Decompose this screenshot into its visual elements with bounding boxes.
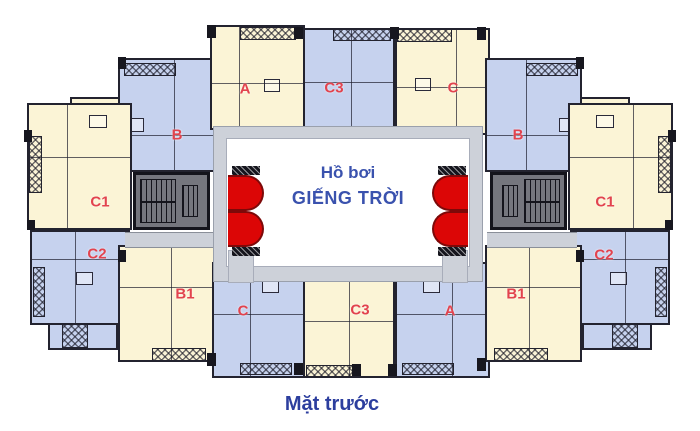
pier [352, 364, 361, 376]
unit-b1-bottom-right [485, 245, 582, 362]
stair-core-left [133, 172, 210, 230]
unit-c1-middle-left [27, 103, 132, 230]
unit-c3-bottom-center [303, 268, 395, 378]
unit-label: C [238, 303, 249, 320]
lift-landing [232, 166, 260, 175]
stair-core-right [490, 172, 567, 230]
pier [477, 358, 486, 371]
unit-a-top-left [210, 25, 305, 130]
lift-landing [438, 247, 466, 256]
lift-landing [232, 247, 260, 256]
corridor-right [487, 232, 577, 248]
unit-c-top-right [395, 28, 490, 135]
pier [668, 130, 676, 142]
balcony-hatch [240, 27, 296, 40]
unit-label: B [172, 127, 183, 144]
balcony-hatch [612, 324, 638, 348]
unit-label: A [240, 81, 251, 98]
balcony-hatch [124, 63, 176, 76]
balcony-hatch [655, 267, 667, 317]
bathroom [264, 79, 280, 92]
courtyard-label-line1: Hồ bơi [227, 163, 469, 183]
pier [27, 220, 35, 230]
pier [477, 27, 486, 40]
unit-label: B1 [506, 286, 525, 303]
courtyard: Hồ bơi GIẾNG TRỜI [226, 138, 470, 267]
unit-label: B [513, 127, 524, 144]
round-lift-icon [228, 175, 264, 211]
pier [207, 25, 216, 38]
pier [665, 220, 673, 230]
unit-label: C3 [350, 302, 369, 319]
balcony-hatch [658, 136, 671, 193]
round-lift-icon [228, 211, 264, 247]
staircase-icon [502, 185, 518, 217]
unit-label: A [445, 303, 456, 320]
pier [390, 27, 399, 39]
unit-b1-bottom-left [118, 245, 215, 362]
unit-label: B1 [175, 286, 194, 303]
bathroom [76, 272, 93, 285]
staircase-icon [182, 185, 198, 217]
pier [576, 57, 584, 69]
balcony-hatch [333, 29, 391, 41]
front-caption: Mặt trước [285, 393, 379, 416]
balcony-hatch [526, 63, 578, 76]
pier [576, 250, 584, 262]
unit-c2-lower-left [30, 230, 130, 325]
unit-label: C1 [595, 194, 614, 211]
round-lift-icon [432, 175, 468, 211]
pier [294, 363, 303, 375]
bathroom [415, 78, 431, 91]
balcony-hatch [62, 324, 88, 348]
unit-label: C [448, 80, 459, 97]
bathroom [89, 115, 107, 128]
balcony-hatch [29, 136, 42, 193]
staircase-icon [524, 179, 560, 223]
unit-label: C2 [87, 246, 106, 263]
balcony-hatch [240, 363, 292, 375]
staircase-icon [140, 179, 176, 223]
corridor-left [125, 232, 215, 248]
bathroom [610, 272, 627, 285]
pier [207, 353, 216, 366]
bathroom [596, 115, 614, 128]
balcony-hatch [33, 267, 45, 317]
round-lift-icon [432, 211, 468, 247]
balcony-hatch [306, 365, 358, 377]
balcony-hatch [402, 363, 454, 375]
unit-label: C2 [594, 247, 613, 264]
pier [118, 250, 126, 262]
balcony-hatch [152, 348, 206, 361]
unit-c3-top-center [303, 28, 395, 135]
balcony-hatch [494, 348, 548, 361]
balcony-hatch [397, 29, 452, 42]
unit-label: C1 [90, 194, 109, 211]
floor-plan: Hồ bơi GIẾNG TRỜI B C1 C2 A C3 C B C1 C2… [0, 0, 700, 431]
pier [388, 364, 397, 376]
pier [24, 130, 32, 142]
unit-label: C3 [324, 80, 343, 97]
pier [118, 57, 126, 69]
lift-landing [438, 166, 466, 175]
pier [294, 27, 303, 39]
